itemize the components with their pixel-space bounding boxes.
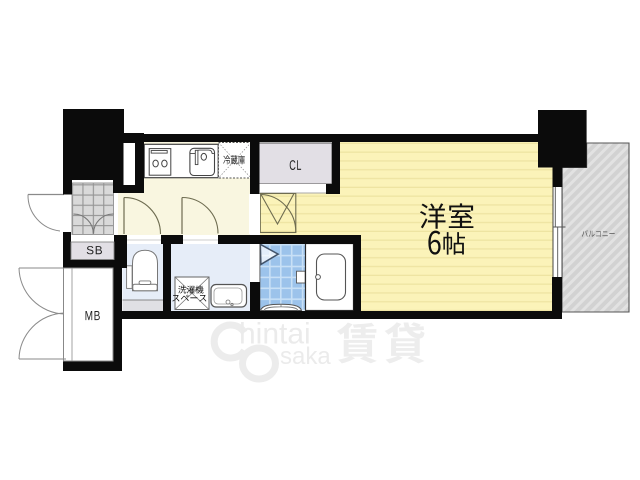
svg-text:saka: saka: [280, 343, 331, 370]
